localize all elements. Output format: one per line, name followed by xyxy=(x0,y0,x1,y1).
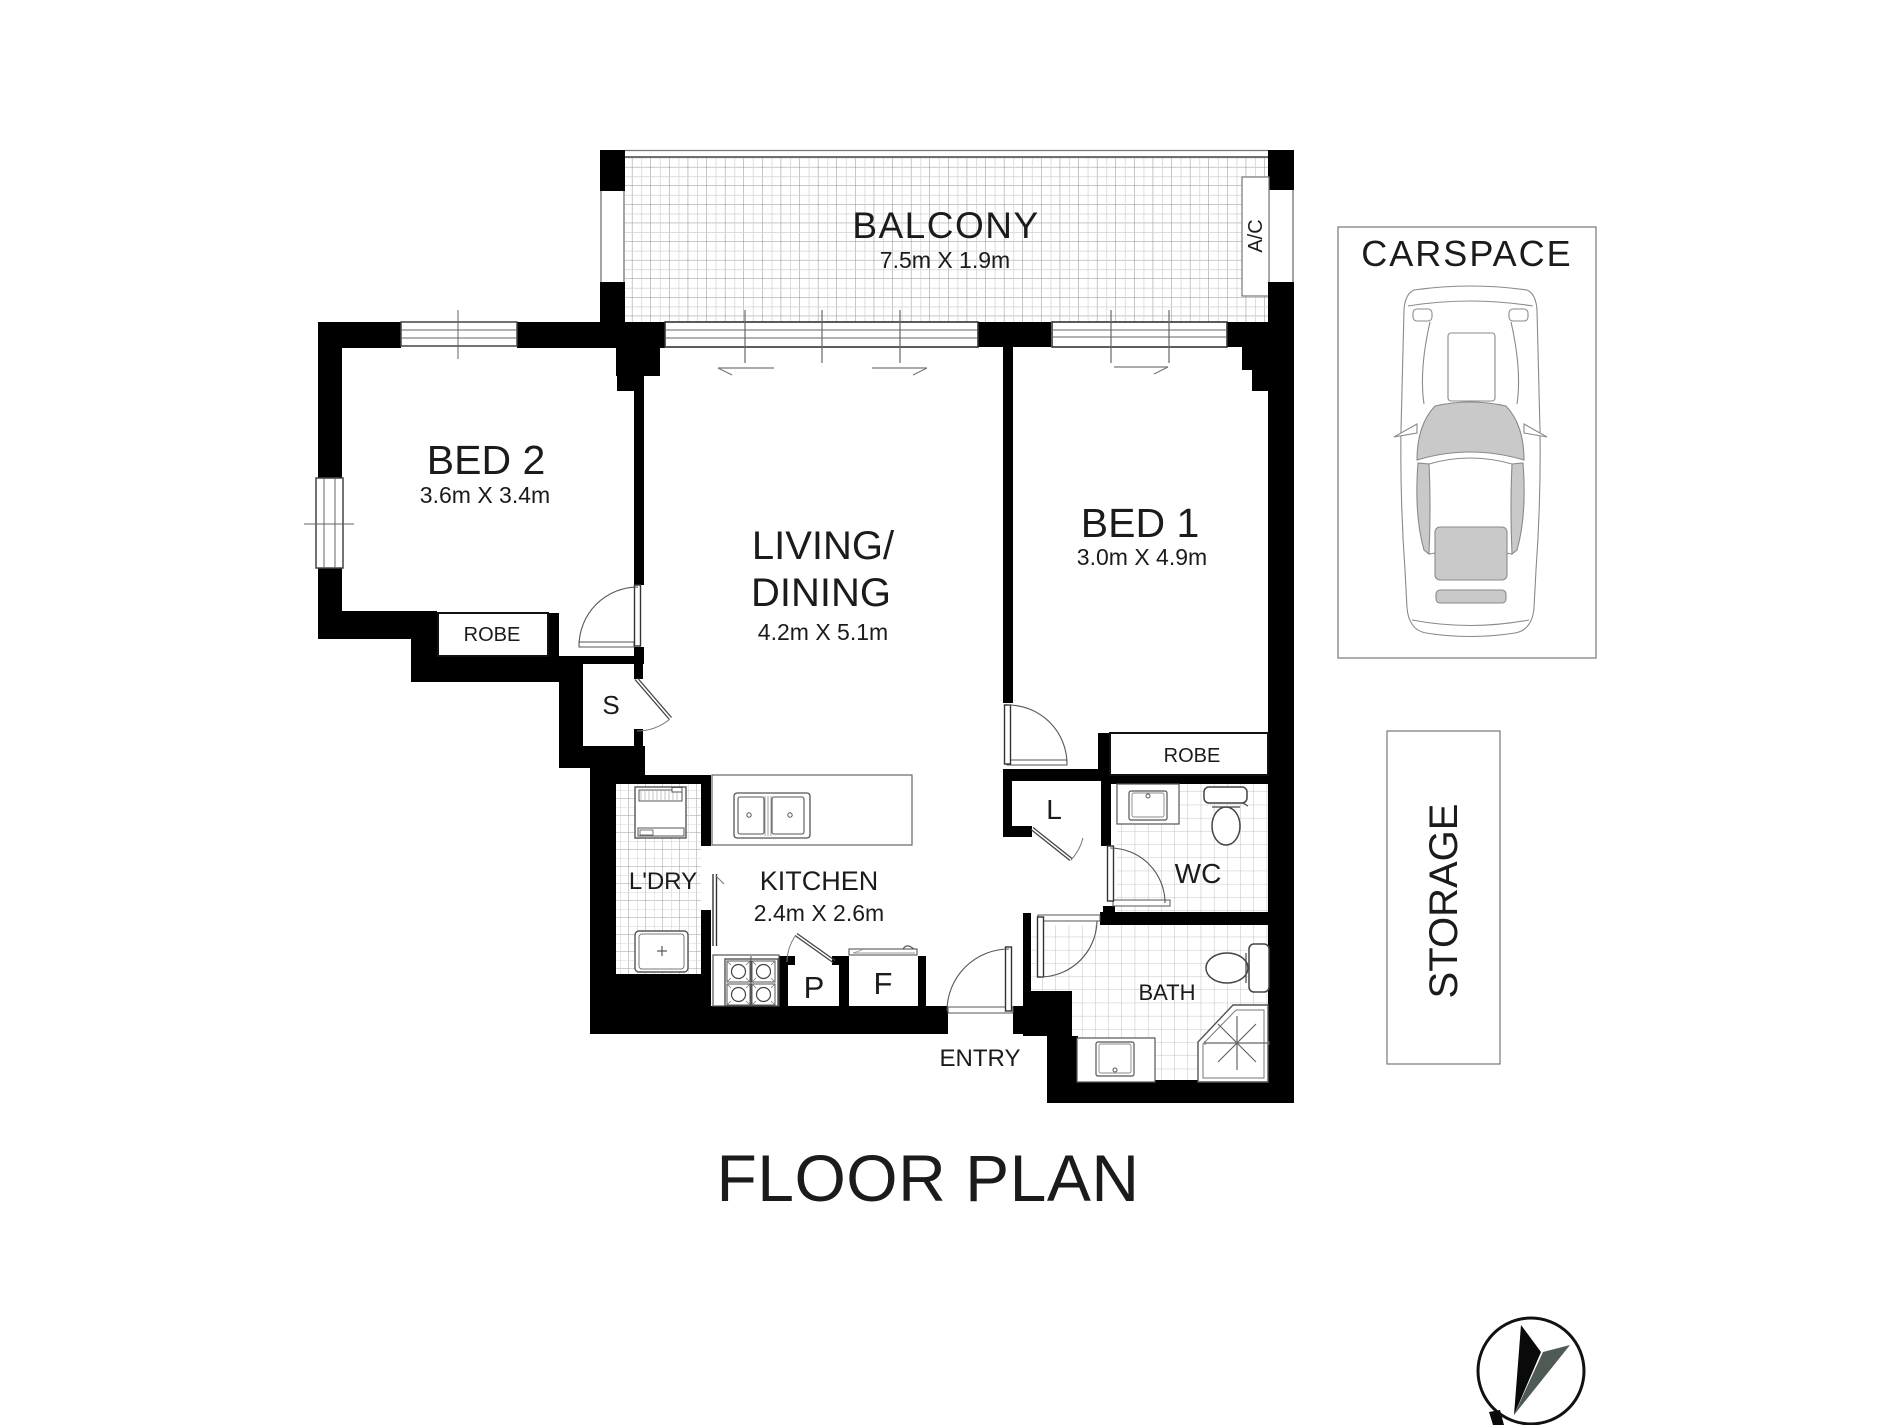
svg-text:L'DRY: L'DRY xyxy=(629,868,697,895)
svg-text:3.0m X 4.9m: 3.0m X 4.9m xyxy=(1077,544,1207,570)
svg-text:4.2m X 5.1m: 4.2m X 5.1m xyxy=(758,619,888,645)
svg-text:STORAGE: STORAGE xyxy=(1422,804,1466,999)
svg-text:BED 1: BED 1 xyxy=(1081,500,1200,546)
svg-text:3.6m X 3.4m: 3.6m X 3.4m xyxy=(420,482,550,508)
svg-text:7.5m X 1.9m: 7.5m X 1.9m xyxy=(880,247,1010,273)
svg-text:CARSPACE: CARSPACE xyxy=(1361,233,1572,274)
svg-text:LIVING/: LIVING/ xyxy=(752,524,895,568)
svg-text:ENTRY: ENTRY xyxy=(940,1045,1021,1072)
svg-text:KITCHEN: KITCHEN xyxy=(760,866,879,896)
svg-text:2.4m X 2.6m: 2.4m X 2.6m xyxy=(754,900,884,926)
svg-text:L: L xyxy=(1046,794,1062,825)
svg-text:WC: WC xyxy=(1175,858,1222,889)
svg-text:BED 2: BED 2 xyxy=(427,437,546,483)
svg-text:P: P xyxy=(804,970,825,1005)
svg-text:F: F xyxy=(874,966,893,1001)
svg-text:DINING: DINING xyxy=(751,571,891,615)
svg-text:FLOOR PLAN: FLOOR PLAN xyxy=(716,1141,1139,1215)
svg-text:BATH: BATH xyxy=(1138,980,1195,1005)
svg-text:S: S xyxy=(602,690,619,720)
svg-text:A/C: A/C xyxy=(1245,219,1267,252)
svg-text:ROBE: ROBE xyxy=(464,624,521,646)
svg-text:BALCONY: BALCONY xyxy=(852,205,1039,246)
svg-text:ROBE: ROBE xyxy=(1164,745,1221,767)
